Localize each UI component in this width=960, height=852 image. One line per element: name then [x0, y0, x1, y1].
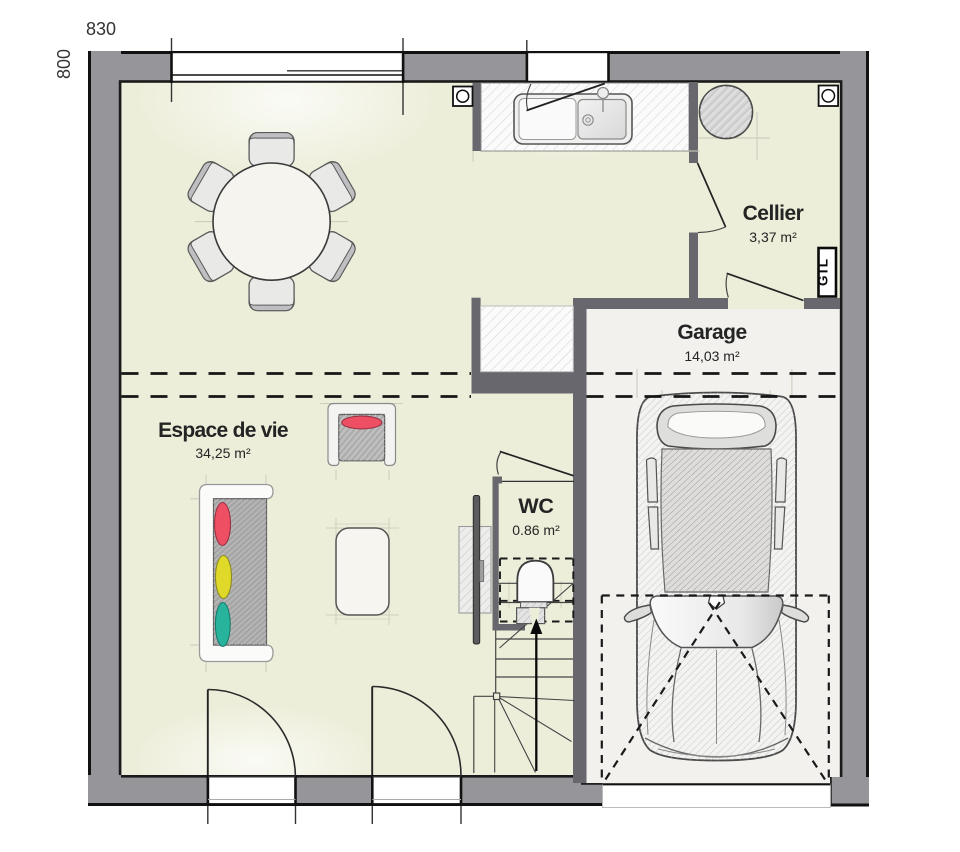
svg-text:14,03 m²: 14,03 m² [684, 348, 740, 364]
svg-text:34,25 m²: 34,25 m² [195, 445, 251, 461]
svg-text:GTL: GTL [816, 259, 831, 286]
svg-text:Espace de vie: Espace de vie [158, 419, 288, 442]
svg-text:830: 830 [86, 19, 116, 39]
svg-text:3,37 m²: 3,37 m² [749, 229, 797, 245]
svg-text:800: 800 [54, 49, 74, 79]
svg-text:0.86 m²: 0.86 m² [512, 522, 560, 538]
svg-text:Garage: Garage [677, 321, 746, 344]
svg-text:WC: WC [518, 494, 553, 518]
svg-text:Cellier: Cellier [743, 202, 804, 225]
